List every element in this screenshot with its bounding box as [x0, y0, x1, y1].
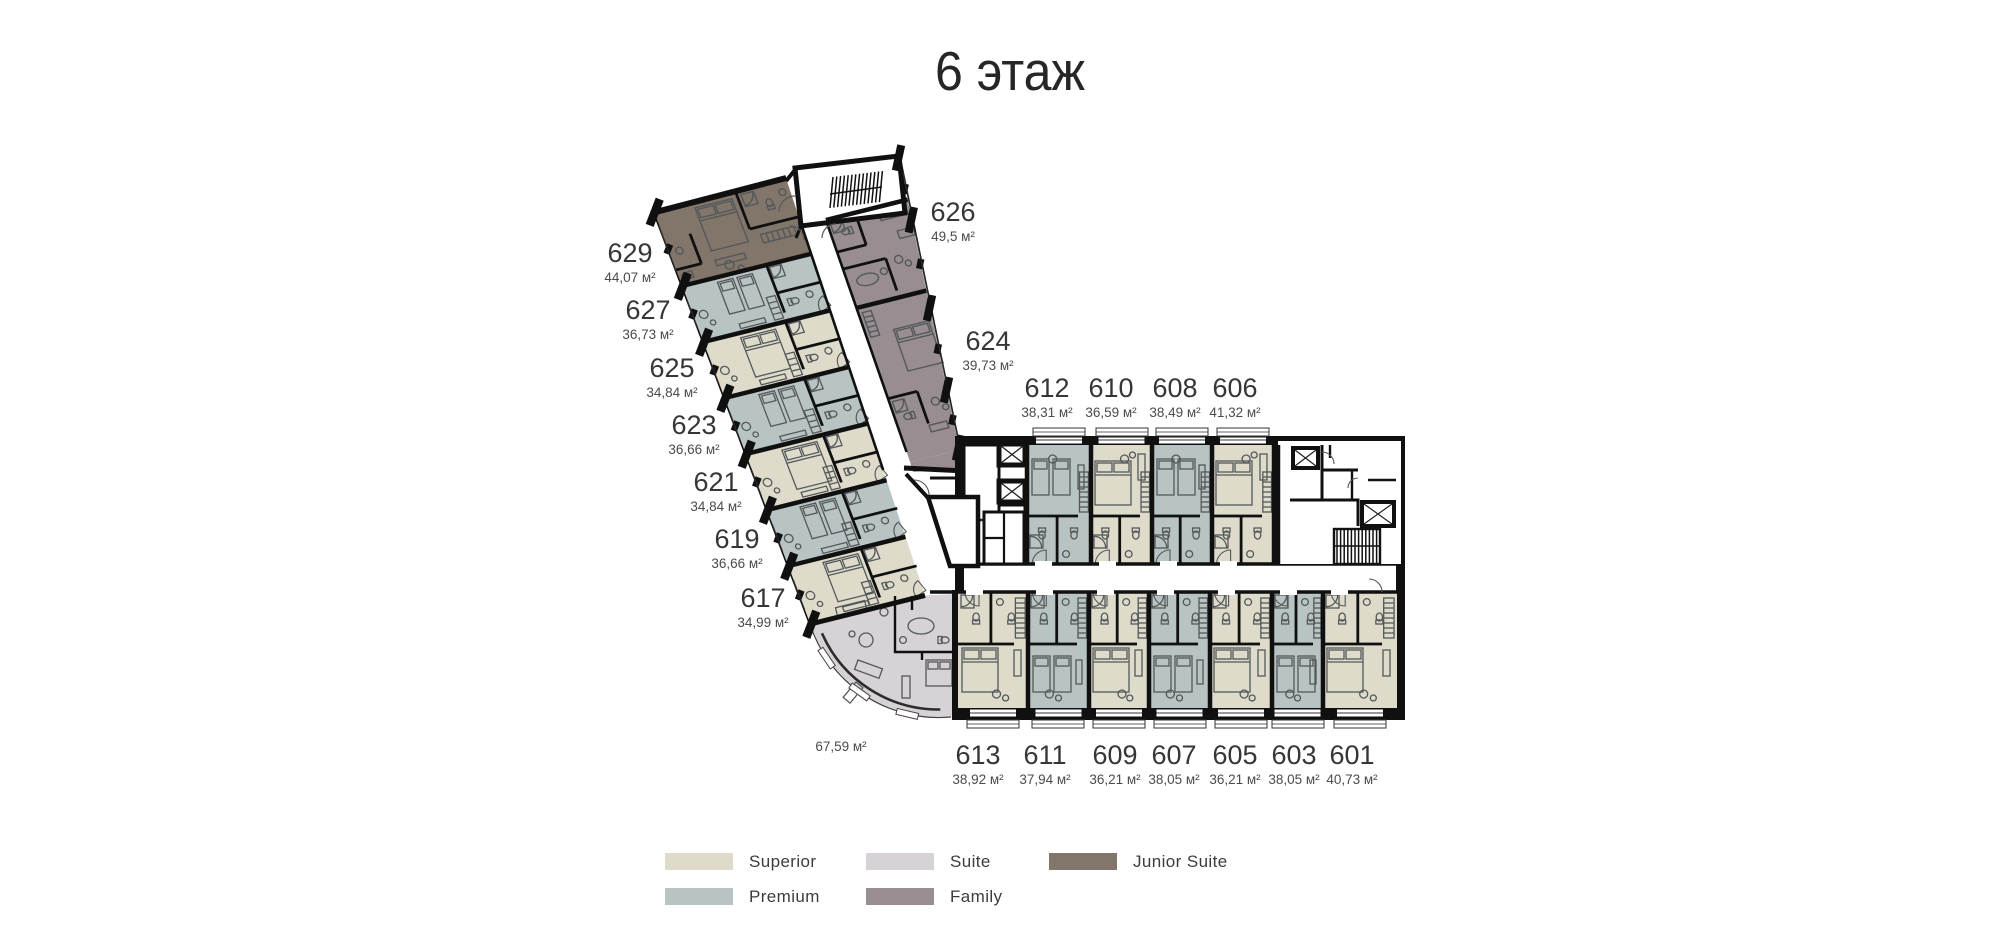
svg-text:41,32 м²: 41,32 м² — [1209, 405, 1261, 420]
svg-text:Family: Family — [950, 887, 1003, 906]
svg-text:Junior Suite: Junior Suite — [1133, 852, 1228, 871]
svg-text:36,66 м²: 36,66 м² — [668, 442, 720, 457]
svg-text:624: 624 — [965, 326, 1010, 356]
svg-text:625: 625 — [649, 353, 694, 383]
svg-text:606: 606 — [1212, 373, 1257, 403]
svg-text:36,59 м²: 36,59 м² — [1085, 405, 1137, 420]
svg-text:36,73 м²: 36,73 м² — [622, 327, 674, 342]
svg-text:34,84 м²: 34,84 м² — [690, 499, 742, 514]
svg-text:610: 610 — [1088, 373, 1133, 403]
svg-text:603: 603 — [1271, 740, 1316, 770]
svg-text:619: 619 — [714, 524, 759, 554]
svg-text:605: 605 — [1212, 740, 1257, 770]
svg-text:40,73 м²: 40,73 м² — [1326, 772, 1378, 787]
svg-text:34,99 м²: 34,99 м² — [737, 615, 789, 630]
svg-text:609: 609 — [1092, 740, 1137, 770]
svg-text:621: 621 — [693, 467, 738, 497]
svg-text:623: 623 — [671, 410, 716, 440]
svg-text:627: 627 — [625, 295, 670, 325]
svg-text:36,66 м²: 36,66 м² — [711, 556, 763, 571]
svg-text:37,94 м²: 37,94 м² — [1019, 772, 1071, 787]
svg-text:626: 626 — [930, 197, 975, 227]
svg-text:629: 629 — [607, 238, 652, 268]
svg-text:6 этаж: 6 этаж — [935, 40, 1085, 102]
svg-text:36,21 м²: 36,21 м² — [1209, 772, 1261, 787]
svg-text:612: 612 — [1024, 373, 1069, 403]
svg-text:36,21 м²: 36,21 м² — [1089, 772, 1141, 787]
svg-text:617: 617 — [740, 583, 785, 613]
svg-text:44,07 м²: 44,07 м² — [604, 270, 656, 285]
svg-text:607: 607 — [1151, 740, 1196, 770]
svg-text:67,59 м²: 67,59 м² — [815, 739, 867, 754]
svg-text:38,05 м²: 38,05 м² — [1268, 772, 1320, 787]
svg-text:613: 613 — [955, 740, 1000, 770]
svg-text:611: 611 — [1023, 740, 1066, 770]
svg-text:Suite: Suite — [950, 852, 991, 871]
svg-text:39,73 м²: 39,73 м² — [962, 358, 1014, 373]
svg-text:Superior: Superior — [749, 852, 816, 871]
svg-text:38,31 м²: 38,31 м² — [1021, 405, 1073, 420]
svg-text:34,84 м²: 34,84 м² — [646, 385, 698, 400]
svg-text:601: 601 — [1329, 740, 1374, 770]
svg-text:38,05 м²: 38,05 м² — [1148, 772, 1200, 787]
svg-text:608: 608 — [1152, 373, 1197, 403]
svg-text:Premium: Premium — [749, 887, 820, 906]
svg-text:38,92 м²: 38,92 м² — [952, 772, 1004, 787]
svg-text:38,49 м²: 38,49 м² — [1149, 405, 1201, 420]
svg-text:49,5 м²: 49,5 м² — [931, 229, 975, 244]
